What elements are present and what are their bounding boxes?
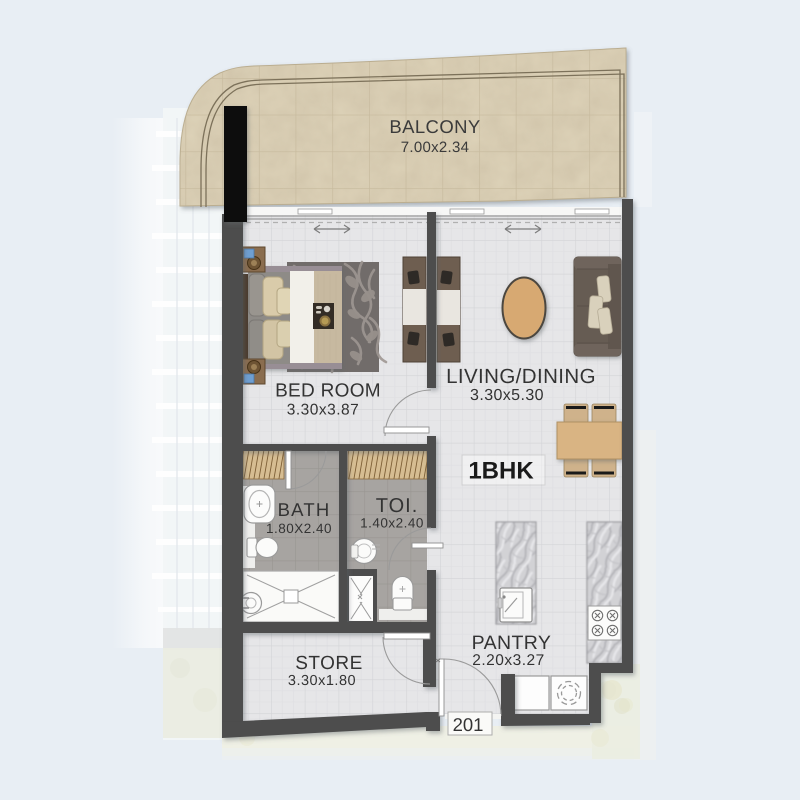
svg-text:3.30x1.80: 3.30x1.80 — [288, 673, 356, 689]
svg-text:BATH: BATH — [278, 499, 331, 520]
svg-text:TOI.: TOI. — [376, 495, 419, 517]
svg-text:PANTRY: PANTRY — [472, 632, 552, 654]
svg-text:3.30x3.87: 3.30x3.87 — [287, 402, 360, 419]
svg-text:1.40x2.40: 1.40x2.40 — [360, 516, 424, 531]
svg-text:2.20x3.27: 2.20x3.27 — [472, 652, 545, 669]
svg-text:BALCONY: BALCONY — [389, 116, 480, 137]
svg-text:7.00x2.34: 7.00x2.34 — [401, 139, 470, 156]
svg-text:BED ROOM: BED ROOM — [275, 381, 381, 402]
svg-text:STORE: STORE — [295, 653, 363, 674]
svg-text:1BHK: 1BHK — [468, 458, 534, 485]
svg-text:3.30x5.30: 3.30x5.30 — [470, 387, 544, 404]
svg-text:1.80X2.40: 1.80X2.40 — [266, 521, 332, 536]
svg-text:201: 201 — [453, 714, 484, 735]
svg-text:LIVING/DINING: LIVING/DINING — [446, 365, 596, 388]
